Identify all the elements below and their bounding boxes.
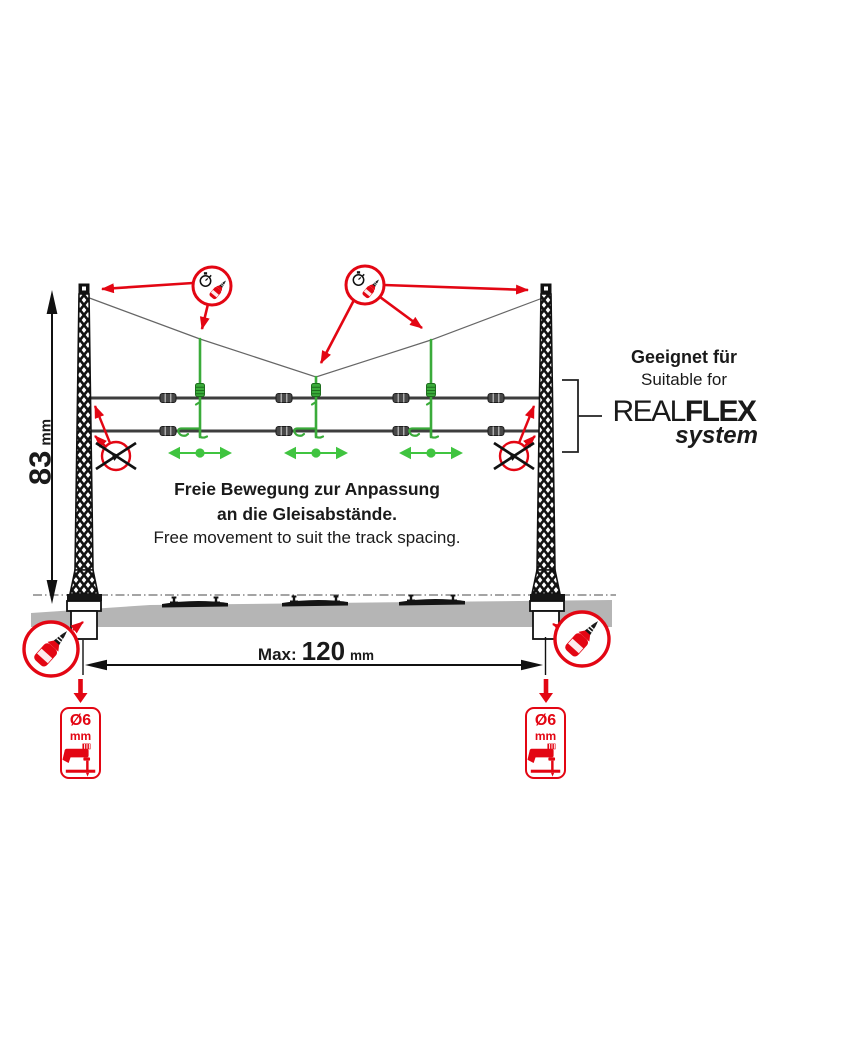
- dropper-collar: [196, 384, 205, 397]
- drill-glyph: [527, 743, 565, 777]
- mast-height-value: 83: [25, 451, 56, 485]
- brand-system: system: [675, 424, 758, 448]
- drill-unit: mm: [535, 730, 556, 742]
- glue-and-wait-icon: [346, 266, 384, 304]
- left-mast: [67, 284, 102, 640]
- drill-hole-icon: Ø6 mm: [525, 707, 566, 779]
- right-mast: [530, 284, 565, 640]
- left-mast-base-plate: [67, 601, 101, 611]
- dropper-collar: [427, 384, 436, 397]
- free-movement-arrow: [168, 447, 232, 459]
- free-movement-arrow: [399, 447, 463, 459]
- brand-real: REAL: [612, 395, 684, 428]
- droppers: [178, 339, 438, 438]
- free-movement-de-line2: an die Gleisabstände.: [153, 502, 460, 527]
- max-unit: mm: [350, 648, 374, 663]
- max-value: 120: [302, 638, 345, 664]
- drill-unit: mm: [70, 730, 91, 742]
- track-spacing-label: Max: 120 mm: [258, 638, 374, 665]
- max-label: Max:: [258, 645, 297, 665]
- wire-couplers: [160, 394, 504, 436]
- suitable-for-en: Suitable for: [641, 370, 727, 390]
- drill-diameter: Ø6: [535, 712, 556, 730]
- suitable-for-de: Geeignet für: [631, 347, 737, 368]
- drill-pointer-arrow: [74, 679, 554, 703]
- right-mast-base-plate: [530, 601, 564, 611]
- drill-diameter: Ø6: [70, 712, 91, 730]
- mast-height-unit: mm: [38, 419, 55, 446]
- no-glue-icon: [494, 442, 534, 470]
- free-movement-de-line1: Freie Bewegung zur Anpassung: [153, 477, 460, 502]
- instruction-sheet: { "headline": { "de": "Geeignet für", "e…: [0, 0, 854, 1058]
- free-movement-en: Free movement to suit the track spacing.: [153, 526, 460, 551]
- glue-icon: [24, 622, 78, 676]
- track-section: [282, 596, 348, 607]
- suspension-wire: [84, 296, 548, 377]
- dropper-collar: [312, 384, 321, 397]
- drill-glyph: [62, 743, 100, 777]
- free-movement-note: Freie Bewegung zur Anpassung an die Glei…: [153, 477, 460, 551]
- free-movement-arrow: [284, 447, 348, 459]
- realflex-bracket: [562, 380, 602, 452]
- glue-and-wait-icon: [193, 267, 231, 305]
- mast-height-label: 83 mm: [25, 419, 56, 485]
- drill-hole-icon: Ø6 mm: [60, 707, 101, 779]
- glue-icon: [555, 612, 609, 666]
- no-glue-icon: [96, 442, 136, 470]
- track-section: [162, 597, 228, 608]
- glue-and-wait-arrows: [102, 283, 528, 363]
- track-section: [399, 595, 465, 606]
